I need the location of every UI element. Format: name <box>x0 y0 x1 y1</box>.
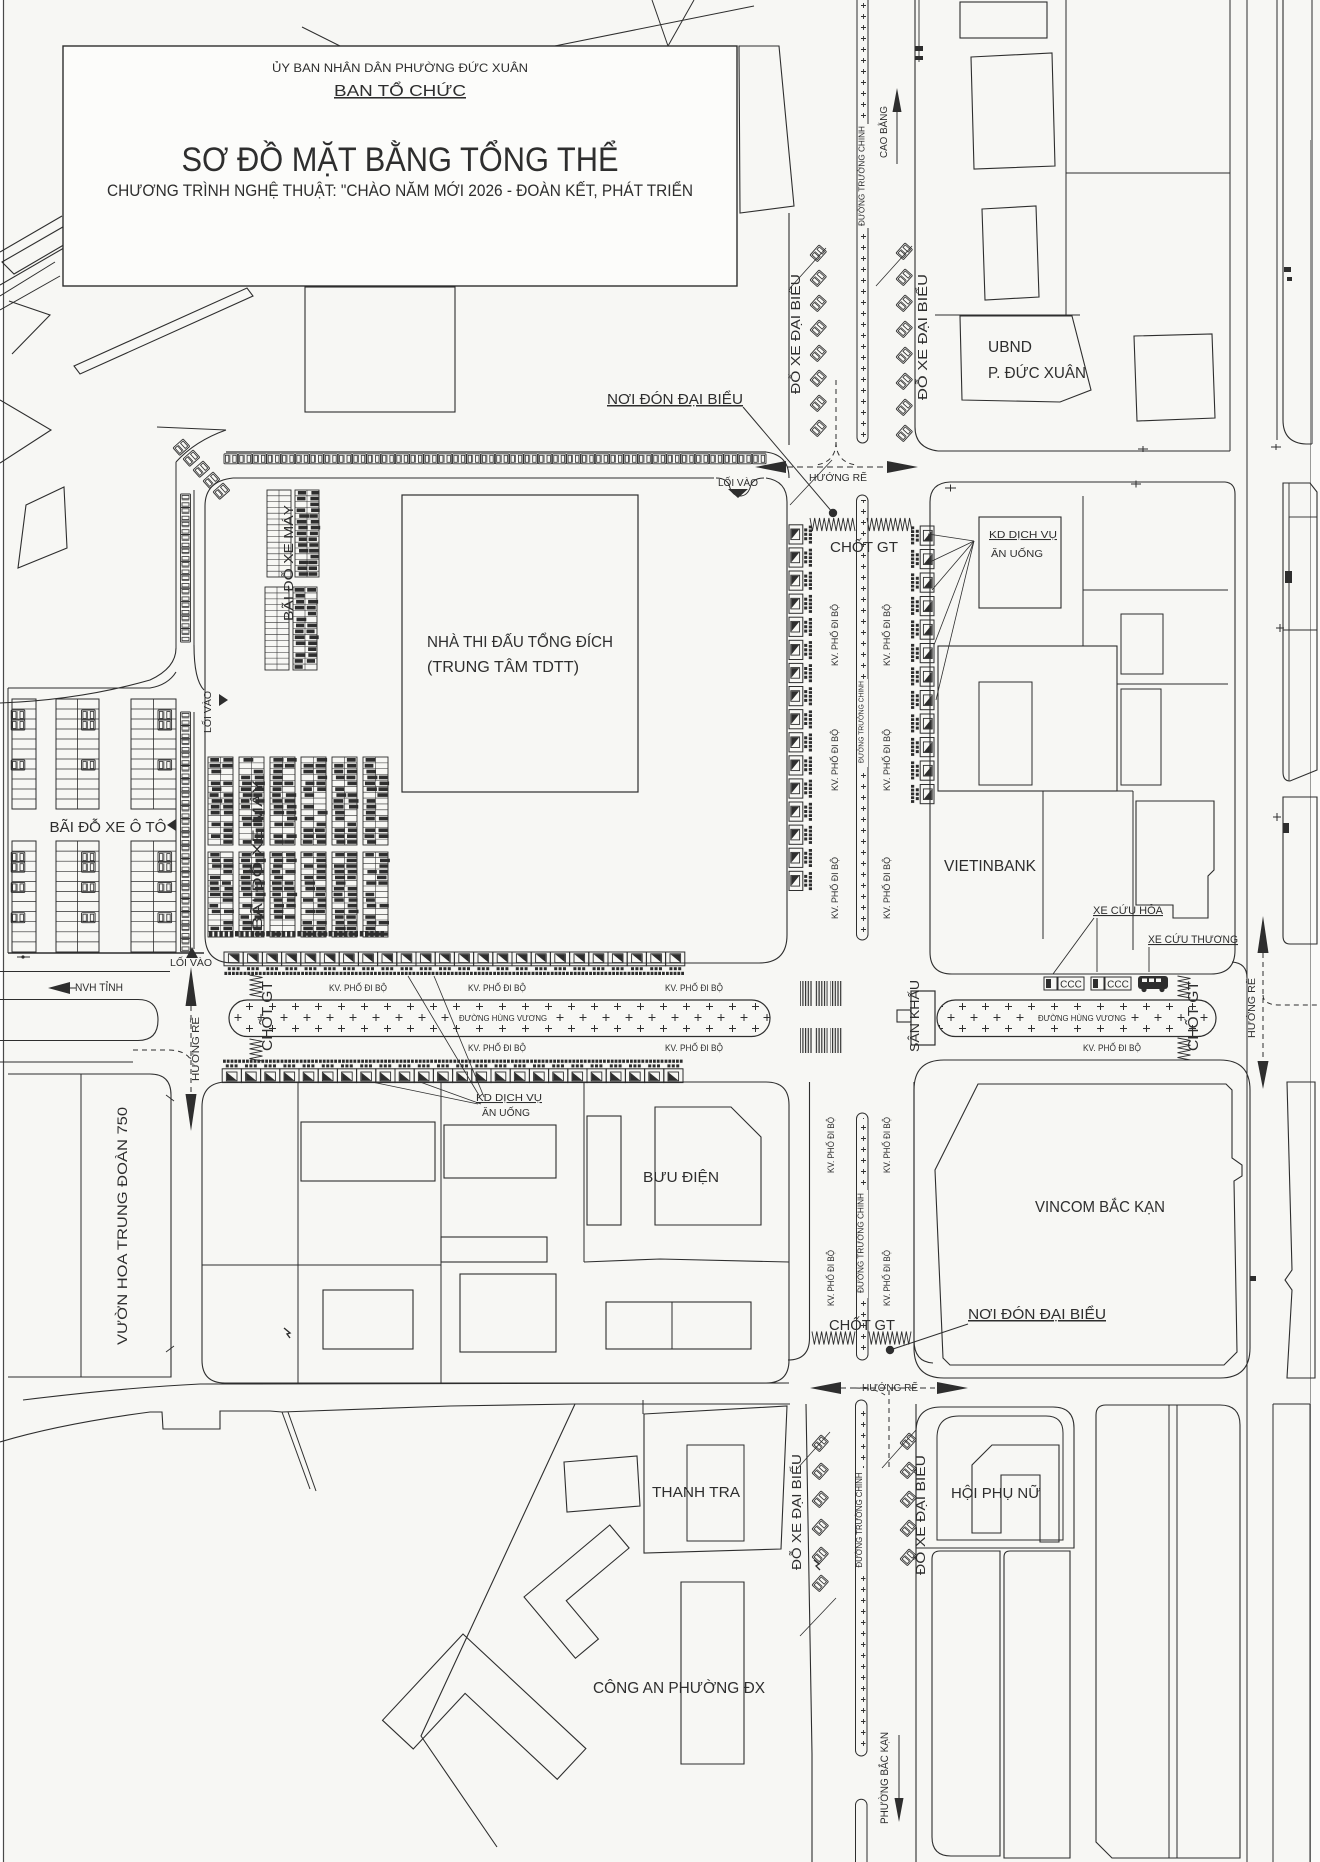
svg-text:(TRUNG TÂM TDTT): (TRUNG TÂM TDTT) <box>427 657 579 676</box>
svg-text:SÂN KHẤU: SÂN KHẤU <box>907 980 922 1052</box>
svg-text:KV. PHỐ ĐI BỘ: KV. PHỐ ĐI BỘ <box>881 1250 892 1306</box>
svg-text:CCC: CCC <box>1107 980 1129 991</box>
svg-text:CHƯƠNG TRÌNH NGHỆ THUẬT: "CHÀO: CHƯƠNG TRÌNH NGHỆ THUẬT: "CHÀO NĂM MỚI 2… <box>107 181 693 200</box>
svg-text:LỐI VÀO: LỐI VÀO <box>718 475 758 489</box>
svg-text:ĐỖ XE ĐẠI BIỂU: ĐỖ XE ĐẠI BIỂU <box>915 274 930 400</box>
svg-text:CHỐT GT: CHỐT GT <box>1184 981 1202 1051</box>
svg-text:HỘI PHỤ NỮ: HỘI PHỤ NỮ <box>951 1485 1041 1502</box>
svg-text:PHƯỜNG BẮC KẠN: PHƯỜNG BẮC KẠN <box>878 1732 891 1824</box>
svg-text:KV. PHỐ ĐI BỘ: KV. PHỐ ĐI BỘ <box>881 729 892 791</box>
svg-text:CCC: CCC <box>1060 980 1082 991</box>
svg-text:ĐƯỜNG TRƯỜNG CHINH: ĐƯỜNG TRƯỜNG CHINH <box>855 1472 864 1567</box>
svg-text:ĂN UỐNG: ĂN UỐNG <box>991 546 1043 560</box>
svg-text:ĐƯỜNG TRƯỜNG CHINH: ĐƯỜNG TRƯỜNG CHINH <box>857 681 866 763</box>
svg-text:KV. PHỐ ĐI BỘ: KV. PHỐ ĐI BỘ <box>468 982 526 994</box>
svg-text:HƯỚNG RẼ: HƯỚNG RẼ <box>809 471 867 484</box>
svg-text:ĐƯỜNG HÙNG VƯƠNG: ĐƯỜNG HÙNG VƯƠNG <box>1038 1013 1126 1023</box>
svg-text:KV. PHỐ ĐI BỘ: KV. PHỐ ĐI BỘ <box>665 982 723 994</box>
svg-text:KD DỊCH VỤ: KD DỊCH VỤ <box>989 529 1057 541</box>
svg-text:KV. PHỐ ĐI BỘ: KV. PHỐ ĐI BỘ <box>468 1042 526 1054</box>
svg-text:XE CỨU HỎA: XE CỨU HỎA <box>1093 904 1164 917</box>
svg-text:VƯỜN HOA TRUNG ĐOÀN 750: VƯỜN HOA TRUNG ĐOÀN 750 <box>114 1107 130 1345</box>
svg-text:ĐỖ XE ĐẠI BIỂU: ĐỖ XE ĐẠI BIỂU <box>788 274 803 394</box>
svg-text:NVH TỈNH: NVH TỈNH <box>75 981 123 994</box>
svg-text:BAN TỔ CHỨC: BAN TỔ CHỨC <box>334 82 466 100</box>
svg-text:KV. PHỐ ĐI BỘ: KV. PHỐ ĐI BỘ <box>829 604 840 666</box>
svg-text:NƠI ĐÓN ĐẠI BIỂU: NƠI ĐÓN ĐẠI BIỂU <box>607 390 743 408</box>
svg-text:KV. PHỐ ĐI BỘ: KV. PHỐ ĐI BỘ <box>665 1042 723 1054</box>
svg-text:CHỐT GT: CHỐT GT <box>829 1316 895 1334</box>
svg-text:KV. PHỐ ĐI BỘ: KV. PHỐ ĐI BỘ <box>1083 1042 1141 1054</box>
svg-text:CÔNG AN PHƯỜNG ĐX: CÔNG AN PHƯỜNG ĐX <box>593 1680 766 1697</box>
svg-text:KV. PHỐ ĐI BỘ: KV. PHỐ ĐI BỘ <box>881 604 892 666</box>
svg-text:SƠ ĐỒ MẶT BẰNG TỔNG THỂ: SƠ ĐỒ MẶT BẰNG TỔNG THỂ <box>182 141 619 179</box>
svg-text:KV. PHỐ ĐI BỘ: KV. PHỐ ĐI BỘ <box>881 857 892 919</box>
svg-text:KV. PHỐ ĐI BỘ: KV. PHỐ ĐI BỘ <box>881 1117 892 1173</box>
svg-text:ĐỖ XE ĐẠI BIỂU: ĐỖ XE ĐẠI BIỂU <box>789 1454 804 1570</box>
svg-text:KV. PHỐ ĐI BỘ: KV. PHỐ ĐI BỘ <box>825 1250 836 1306</box>
svg-text:LỐI VÀO: LỐI VÀO <box>200 691 214 733</box>
svg-text:ỦY BAN NHÂN DÂN PHƯỜNG ĐỨC XUÂ: ỦY BAN NHÂN DÂN PHƯỜNG ĐỨC XUÂN <box>272 62 528 75</box>
svg-text:CAO BẰNG: CAO BẰNG <box>877 106 890 158</box>
svg-text:KV. PHỐ ĐI BỘ: KV. PHỐ ĐI BỘ <box>825 1117 836 1173</box>
svg-text:HƯỚNG RẼ: HƯỚNG RẼ <box>189 1017 202 1081</box>
svg-text:ĐƯỜNG HÙNG VƯƠNG: ĐƯỜNG HÙNG VƯƠNG <box>459 1013 547 1023</box>
svg-text:P. ĐỨC XUÂN: P. ĐỨC XUÂN <box>988 365 1086 382</box>
svg-text:ĐỖ XE ĐẠI BIỂU: ĐỖ XE ĐẠI BIỂU <box>913 1455 928 1575</box>
svg-text:KV. PHỐ ĐI BỘ: KV. PHỐ ĐI BỘ <box>329 982 387 994</box>
svg-text:NHÀ THI ĐẤU TỔNG ĐÍCH: NHÀ THI ĐẤU TỔNG ĐÍCH <box>427 632 613 651</box>
svg-text:KV. PHỐ ĐI BỘ: KV. PHỐ ĐI BỘ <box>829 857 840 919</box>
svg-text:UBND: UBND <box>988 339 1032 356</box>
svg-text:NƠI ĐÓN ĐẠI BIỂU: NƠI ĐÓN ĐẠI BIỂU <box>968 1305 1106 1323</box>
svg-text:BÃI ĐỖ XE MÁY: BÃI ĐỖ XE MÁY <box>248 779 265 930</box>
svg-text:KV. PHỐ ĐI BỘ: KV. PHỐ ĐI BỘ <box>829 729 840 791</box>
svg-text:VIETINBANK: VIETINBANK <box>944 858 1036 875</box>
svg-text:ĐƯỜNG TRƯỜNG CHINH: ĐƯỜNG TRƯỜNG CHINH <box>857 1193 866 1293</box>
svg-text:VINCOM BẮC KẠN: VINCOM BẮC KẠN <box>1035 1198 1165 1216</box>
svg-text:ĐƯỜNG TRƯỜNG CHINH: ĐƯỜNG TRƯỜNG CHINH <box>858 126 867 226</box>
svg-text:HƯỚNG RẼ: HƯỚNG RẼ <box>1245 978 1258 1038</box>
svg-text:XE CỨU THƯƠNG: XE CỨU THƯƠNG <box>1148 933 1238 946</box>
svg-text:KD DỊCH VỤ: KD DỊCH VỤ <box>476 1092 542 1104</box>
svg-text:BÃI ĐỖ XE MÁY: BÃI ĐỖ XE MÁY <box>281 505 296 621</box>
svg-text:THANH TRA: THANH TRA <box>652 1484 740 1501</box>
svg-text:ĂN UỐNG: ĂN UỐNG <box>482 1105 530 1119</box>
svg-text:BÃI ĐỖ XE Ô TÔ: BÃI ĐỖ XE Ô TÔ <box>50 818 167 836</box>
svg-text:CHỐT GT: CHỐT GT <box>258 981 276 1051</box>
svg-text:BƯU ĐIỆN: BƯU ĐIỆN <box>643 1169 719 1186</box>
